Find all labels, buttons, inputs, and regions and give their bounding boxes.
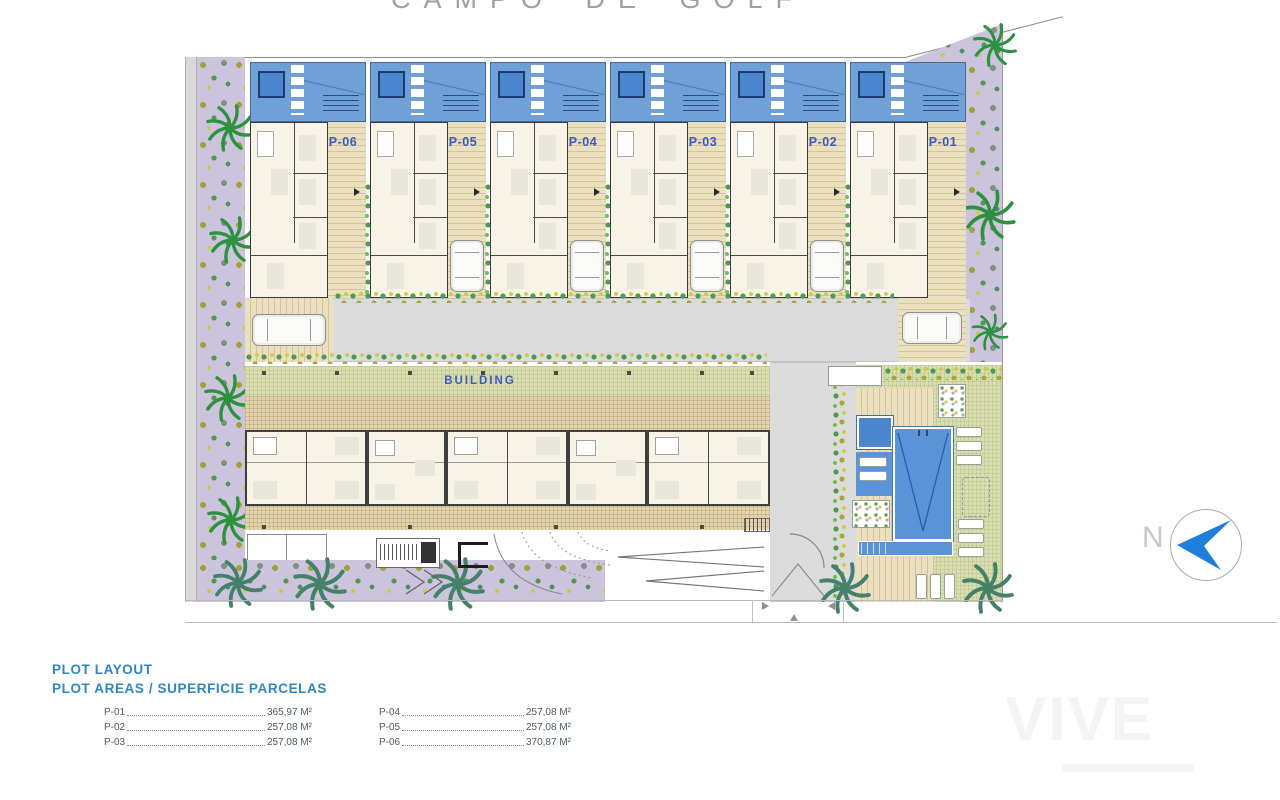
sun-lounger xyxy=(930,574,941,599)
rooftop-pool xyxy=(858,71,885,98)
house-interior xyxy=(250,122,328,298)
legend-area: 257,08 M² xyxy=(526,722,571,733)
parked-car xyxy=(810,240,844,292)
legend-leader xyxy=(402,707,524,716)
house-interior xyxy=(610,122,688,298)
legend-column-2: P-04 257,08 M² P-05 257,08 M² P-06 370,8… xyxy=(379,703,571,748)
plot-unit-p06: P-06 xyxy=(250,62,366,298)
palm-tree-icon xyxy=(960,560,1016,616)
plot-unit-p02: P-02 xyxy=(730,62,846,298)
plot-label: P-01 xyxy=(920,134,966,150)
palm-tree-icon xyxy=(211,556,265,610)
plot-label: P-06 xyxy=(320,134,366,150)
sun-lounger xyxy=(944,574,955,599)
north-arrow: N xyxy=(1142,505,1252,589)
legend-area: 257,08 M² xyxy=(267,722,312,733)
legend-title: PLOT LAYOUT xyxy=(52,662,153,677)
roof-stairs xyxy=(291,65,304,115)
column-dot xyxy=(750,371,754,375)
ramp-arrow-icon xyxy=(404,568,444,598)
sidewalk-tick xyxy=(843,600,844,622)
building-label: BUILDING xyxy=(395,375,565,387)
legend-leader xyxy=(127,722,265,731)
legend-area: 257,08 M² xyxy=(526,707,571,718)
palm-tree-icon xyxy=(291,555,349,613)
stair-landing xyxy=(421,542,436,563)
building-apartment-unit xyxy=(568,430,647,506)
hedge-row xyxy=(884,366,1002,380)
sun-lounger xyxy=(956,455,982,465)
legend-plot-id: P-04 xyxy=(379,707,400,718)
rooftop-pool xyxy=(498,71,525,98)
column-dot xyxy=(262,371,266,375)
gate-marker-icon xyxy=(474,188,480,196)
roof-solarium xyxy=(250,62,366,122)
pool-steps xyxy=(858,541,953,556)
palm-tree-icon xyxy=(971,21,1019,69)
rooftop-pool xyxy=(258,71,285,98)
building-terrace-south xyxy=(245,506,770,530)
legend-row: P-03 257,08 M² xyxy=(104,733,312,748)
roof-steps xyxy=(443,91,479,112)
parked-car xyxy=(570,240,604,292)
rooftop-pool xyxy=(618,71,645,98)
legend-area: 370,87 M² xyxy=(526,737,571,748)
legend-plot-id: P-06 xyxy=(379,737,400,748)
gate-marker-icon xyxy=(954,188,960,196)
column-dot xyxy=(262,525,266,529)
column-dot xyxy=(408,371,412,375)
legend-row: P-06 370,87 M² xyxy=(379,733,571,748)
sidewalk-line xyxy=(185,622,1277,623)
house-interior xyxy=(730,122,808,298)
plot-label: P-03 xyxy=(680,134,726,150)
hedge-row xyxy=(334,291,894,303)
pool-step-lines xyxy=(861,543,887,554)
column-dot xyxy=(554,371,558,375)
palm-tree-icon xyxy=(817,560,873,616)
building-duplex-unit xyxy=(647,430,770,506)
parked-car xyxy=(902,312,962,344)
roof-solarium xyxy=(850,62,966,122)
legend-leader xyxy=(402,722,524,731)
ramp-zigzag xyxy=(612,544,768,596)
legend-plot-id: P-01 xyxy=(104,707,125,718)
roof-solarium xyxy=(730,62,846,122)
rooftop-pool xyxy=(738,71,765,98)
building-duplex-unit xyxy=(446,430,568,506)
legend-row: P-04 257,08 M² xyxy=(379,703,571,718)
gate-marker-icon xyxy=(594,188,600,196)
plot-label: P-02 xyxy=(800,134,846,150)
sun-lounger xyxy=(958,519,984,529)
site-plan-page: CAMPO DE GOLF P-06 xyxy=(0,0,1280,800)
palm-tree-icon xyxy=(204,102,256,154)
roof-stairs xyxy=(891,65,904,115)
legend-plot-id: P-02 xyxy=(104,722,125,733)
legend-row: P-01 365,97 M² xyxy=(104,703,312,718)
north-circle xyxy=(1170,509,1242,581)
parked-car xyxy=(252,314,326,346)
rooftop-pool xyxy=(378,71,405,98)
palm-tree-icon xyxy=(970,312,1010,352)
roof-solarium xyxy=(490,62,606,122)
pool-bottom-lines xyxy=(895,429,951,539)
legend-row: P-02 257,08 M² xyxy=(104,718,312,733)
parked-car xyxy=(690,240,724,292)
legend-leader xyxy=(402,737,524,746)
entrance-structure xyxy=(458,542,488,568)
parked-car xyxy=(450,240,484,292)
roof-steps xyxy=(683,91,719,112)
sun-lounger xyxy=(859,457,887,467)
legend-subtitle: PLOT AREAS / SUPERFICIE PARCELAS xyxy=(52,681,327,696)
gate-marker-icon xyxy=(354,188,360,196)
plot-unit-p04: P-04 xyxy=(490,62,606,298)
roof-steps xyxy=(563,91,599,112)
plot-unit-p05: P-05 xyxy=(370,62,486,298)
roof-stairs xyxy=(531,65,544,115)
curved-drive-area xyxy=(492,532,612,600)
building-terrace-north xyxy=(245,396,770,430)
legend-plot-id: P-03 xyxy=(104,737,125,748)
plot-label: P-05 xyxy=(440,134,486,150)
roof-stairs xyxy=(651,65,664,115)
roof-stairs xyxy=(771,65,784,115)
sun-lounger xyxy=(956,441,982,451)
legend-leader xyxy=(127,737,265,746)
roof-solarium xyxy=(370,62,486,122)
north-label: N xyxy=(1142,521,1164,555)
watermark-tagline xyxy=(1062,764,1194,772)
roof-steps xyxy=(323,91,359,112)
roof-stairs xyxy=(411,65,424,115)
palm-tree-icon xyxy=(962,187,1018,243)
pergola xyxy=(828,366,882,386)
column-dot xyxy=(627,371,631,375)
house-interior xyxy=(850,122,928,298)
boundary-top-line xyxy=(185,57,905,58)
legend-leader xyxy=(127,707,265,716)
legend-row: P-05 257,08 M² xyxy=(379,718,571,733)
legend-column-1: P-01 365,97 M² P-02 257,08 M² P-03 257,0… xyxy=(104,703,312,748)
column-dot xyxy=(700,371,704,375)
sun-lounger xyxy=(956,427,982,437)
direction-triangle-icon xyxy=(828,602,835,610)
roof-steps xyxy=(803,91,839,112)
sun-lounger xyxy=(916,574,927,599)
sun-lounger xyxy=(859,471,887,481)
storage-divider xyxy=(286,535,287,563)
legend-area: 257,08 M² xyxy=(267,737,312,748)
gate-marker-icon xyxy=(714,188,720,196)
gate-marker-icon xyxy=(834,188,840,196)
sidewalk-line xyxy=(185,600,1003,601)
roof-solarium xyxy=(610,62,726,122)
stairs-hatch xyxy=(744,518,770,532)
stairs-hatch xyxy=(380,544,420,560)
house-interior xyxy=(490,122,568,298)
watermark: VIVE xyxy=(1005,684,1154,755)
hedge-row xyxy=(245,352,767,364)
legend-plot-id: P-05 xyxy=(379,722,400,733)
column-dot xyxy=(408,525,412,529)
plot-unit-p01: P-01 xyxy=(850,62,966,298)
sidewalk-tick xyxy=(752,600,753,622)
sun-lounger xyxy=(958,547,984,557)
plot-label: P-04 xyxy=(560,134,606,150)
building-duplex-unit xyxy=(245,430,367,506)
direction-triangle-icon xyxy=(790,614,798,621)
plot-unit-p03: P-03 xyxy=(610,62,726,298)
bbq-area xyxy=(962,477,990,517)
building-apartment-unit xyxy=(367,430,446,506)
legend-area: 365,97 M² xyxy=(267,707,312,718)
planter xyxy=(852,500,890,528)
column-dot xyxy=(554,525,558,529)
column-dot xyxy=(335,371,339,375)
north-arrow-icon xyxy=(1177,518,1235,574)
sun-lounger xyxy=(958,533,984,543)
house-interior xyxy=(370,122,448,298)
column-dot xyxy=(700,525,704,529)
flower-bed xyxy=(938,384,966,418)
stair-ramp xyxy=(376,538,440,568)
column-dot xyxy=(481,371,485,375)
roof-steps xyxy=(923,91,959,112)
main-pool xyxy=(893,427,953,541)
jacuzzi-pool xyxy=(857,416,893,449)
direction-triangle-icon xyxy=(762,602,769,610)
page-title: CAMPO DE GOLF xyxy=(388,0,808,15)
left-sidewalk xyxy=(185,57,197,602)
